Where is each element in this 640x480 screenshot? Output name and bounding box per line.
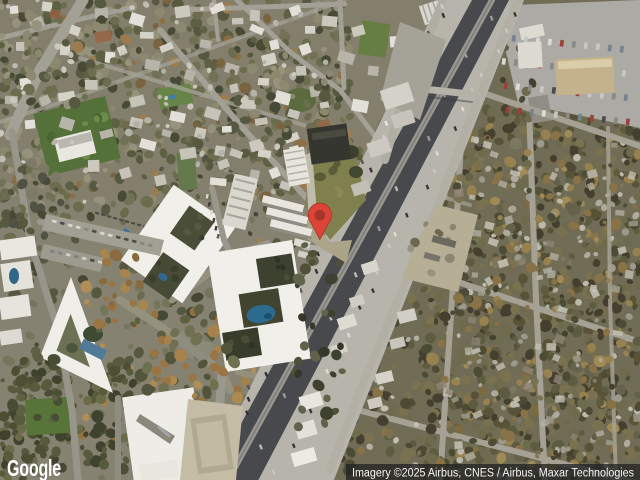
svg-text:Google: Google xyxy=(7,455,61,480)
svg-text:Imagery ©2025 Airbus, CNES / A: Imagery ©2025 Airbus, CNES / Airbus, Max… xyxy=(352,468,634,480)
